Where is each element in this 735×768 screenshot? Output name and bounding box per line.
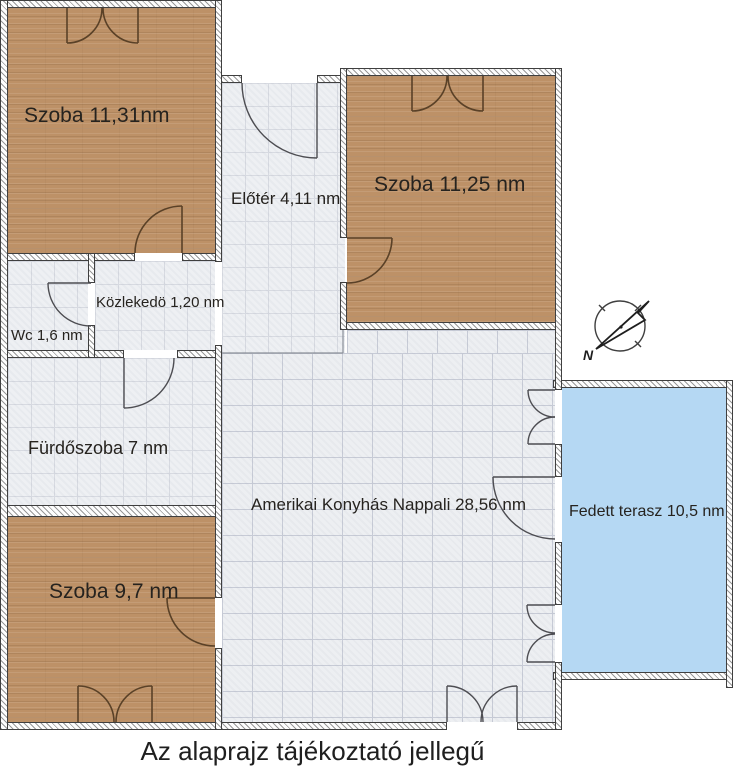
compass-icon: N (583, 301, 649, 363)
wall-segment (340, 68, 347, 238)
wall-segment (0, 0, 222, 8)
room-label-wc: Wc 1,6 nm (11, 328, 83, 345)
wall-segment (0, 253, 135, 261)
wall-segment (340, 68, 562, 76)
room-floor-szoba3 (8, 517, 215, 722)
disclaimer-text: Az alaprajz tájékoztató jellegű (0, 736, 625, 767)
wall-segment (0, 722, 222, 730)
wall-segment (215, 345, 222, 598)
wall-segment (555, 68, 562, 390)
wall-segment (553, 380, 733, 388)
room-label-kozlekedo: Közlekedö 1,20 nm (96, 295, 224, 312)
wall-segment (726, 380, 733, 688)
wall-segment (555, 542, 562, 605)
room-floor-nappali (222, 353, 555, 722)
wall-segment (0, 505, 222, 517)
wall-segment (88, 325, 95, 358)
wall-segment (0, 350, 124, 358)
room-floor-szoba1 (8, 8, 215, 253)
wall-segment (215, 648, 222, 730)
wall-segment (340, 282, 347, 330)
room-floor-eloter (222, 83, 345, 353)
wall-segment (0, 0, 8, 730)
room-floor-nappali-upper (347, 330, 555, 353)
room-floor-szoba2 (347, 76, 555, 322)
room-label-terasz: Fedett terasz 10,5 nm (569, 503, 725, 521)
room-label-eloter: Előtér 4,11 nm (231, 190, 340, 209)
room-label-nappali: Amerikai Konyhás Nappali 28,56 nm (251, 496, 526, 515)
room-label-szoba2: Szoba 11,25 nm (374, 173, 525, 196)
wall-segment (215, 722, 447, 730)
room-label-furdoszoba: Fürdőszoba 7 nm (28, 439, 168, 459)
wall-segment (340, 322, 562, 330)
wall-segment (555, 444, 562, 477)
wall-segment (555, 662, 562, 730)
wall-segment (215, 0, 222, 262)
room-label-szoba3: Szoba 9,7 nm (49, 580, 179, 603)
compass-north-label: N (583, 347, 594, 363)
room-label-szoba1: Szoba 11,31nm (24, 104, 170, 127)
room-floor-terasz (562, 388, 726, 672)
floor-plan: N Szoba 11,31nm Szoba 11,25 nm Előtér 4,… (0, 0, 735, 768)
room-floor-furdoszoba (8, 358, 215, 505)
wall-segment (553, 672, 733, 680)
wall-segment (88, 253, 95, 283)
